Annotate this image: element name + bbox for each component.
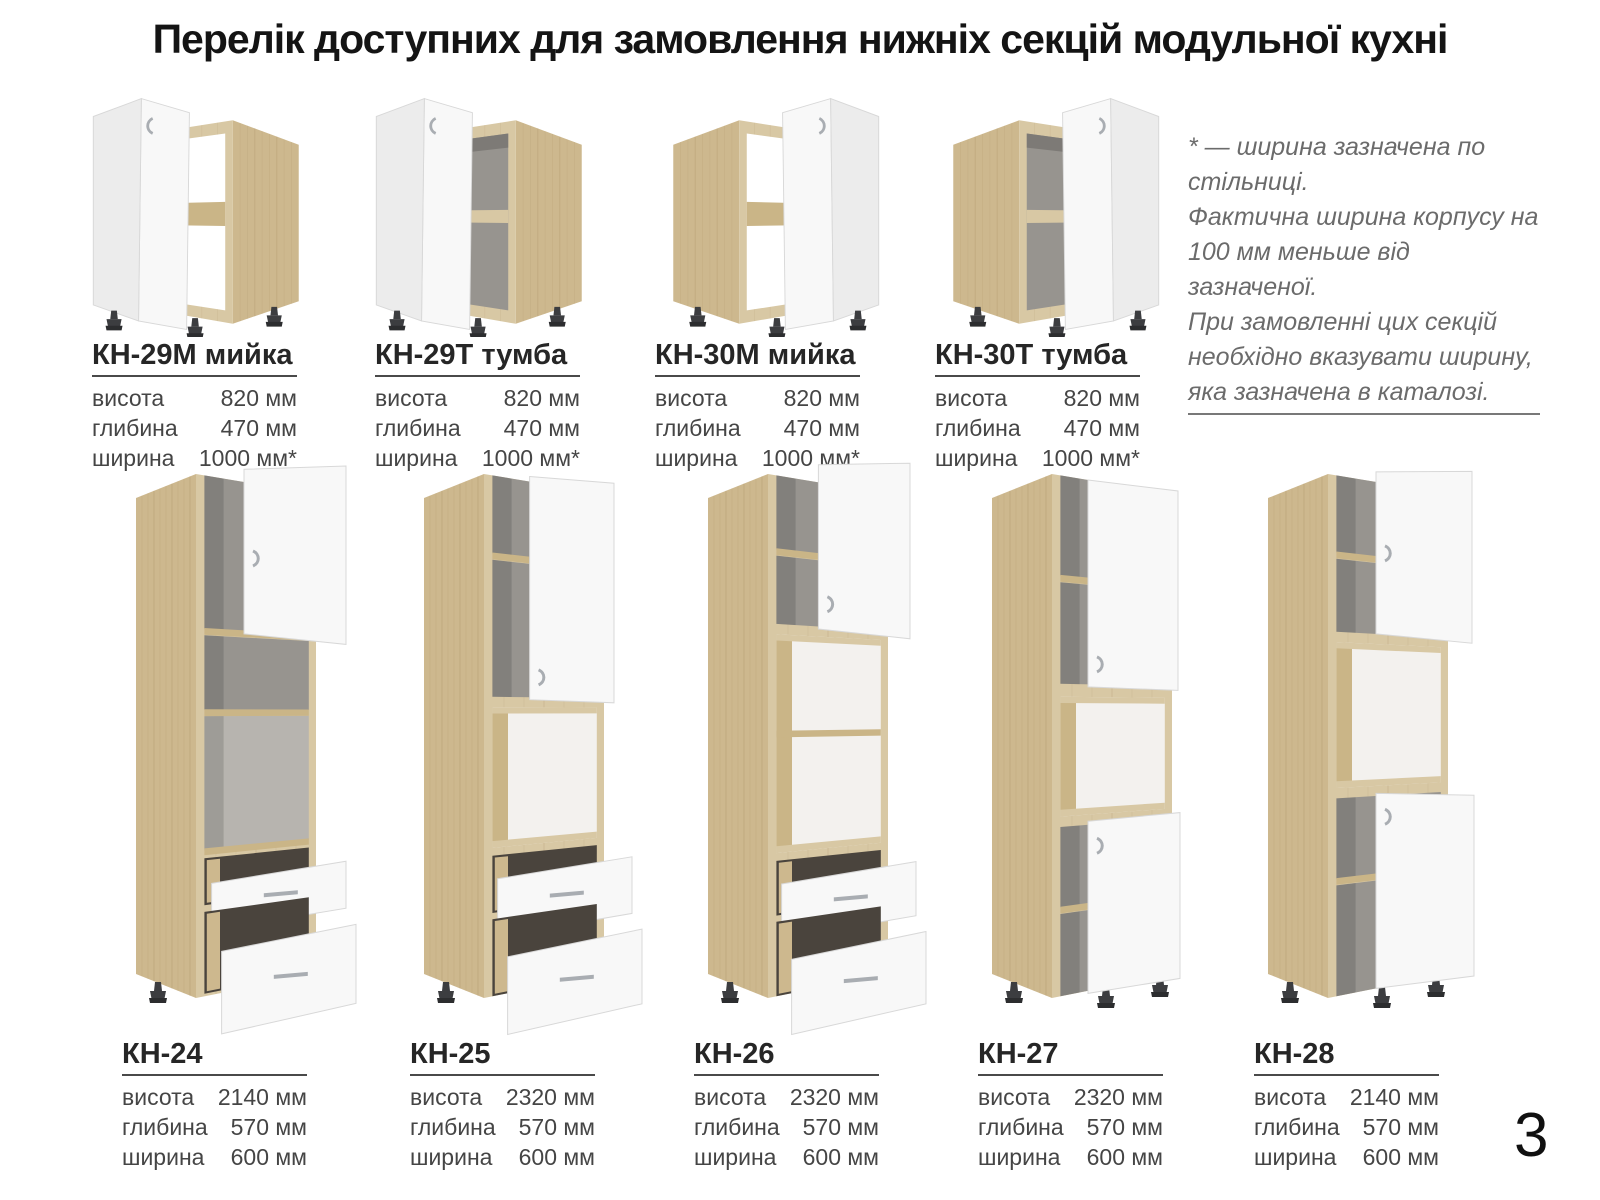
spec-width: ширина600 мм xyxy=(1254,1143,1439,1173)
cabinet-illustration-kn-30m-icon xyxy=(645,92,890,337)
cabinet-model-name: КН-30М мийка xyxy=(655,339,860,372)
cabinet-card-kn-29t: КН-29Т тумба висота820 мм глибина470 мм … xyxy=(365,92,621,474)
cabinet-model-name: КН-30Т тумба xyxy=(935,339,1140,372)
cabinet-card-kn-27: КН-27 висота2320 мм глибина570 мм ширина… xyxy=(956,456,1244,1173)
cabinet-illustration-kn-29t-icon xyxy=(365,92,610,337)
cabinet-illustration-kn-28-icon xyxy=(1232,456,1502,1036)
footnote-line: При замовленні цих секцій необхідно вказ… xyxy=(1188,305,1540,415)
footnote-line: Фактична ширина корпусу на 100 мм меньше… xyxy=(1188,200,1540,305)
footnote: * — ширина зазначена по стільниці. Факти… xyxy=(1188,130,1540,415)
spec-height: висота820 мм xyxy=(92,384,297,414)
spec-height: висота2320 мм xyxy=(978,1083,1163,1113)
cabinet-model-name: КН-29М мийка xyxy=(92,339,297,372)
spec-width: ширина600 мм xyxy=(122,1143,307,1173)
divider xyxy=(935,375,1140,377)
divider xyxy=(655,375,860,377)
spec-depth: глибина470 мм xyxy=(92,414,297,444)
cabinet-illustration-kn-26-icon xyxy=(672,456,942,1036)
cabinet-card-kn-30t: КН-30Т тумба висота820 мм глибина470 мм … xyxy=(925,92,1181,474)
divider xyxy=(1254,1074,1439,1076)
cabinet-model-name: КН-26 xyxy=(694,1038,879,1071)
spec-width: ширина600 мм xyxy=(978,1143,1163,1173)
divider xyxy=(122,1074,307,1076)
cabinet-model-name: КН-27 xyxy=(978,1038,1163,1071)
divider xyxy=(694,1074,879,1076)
spec-height: висота820 мм xyxy=(655,384,860,414)
cabinet-illustration-kn-30t-icon xyxy=(925,92,1170,337)
footnote-line: * — ширина зазначена по стільниці. xyxy=(1188,130,1540,200)
cabinet-model-name: КН-25 xyxy=(410,1038,595,1071)
cabinet-illustration-kn-29m-icon xyxy=(82,92,327,337)
divider xyxy=(410,1074,595,1076)
spec-height: висота2320 мм xyxy=(410,1083,595,1113)
divider xyxy=(375,375,580,377)
spec-depth: глибина570 мм xyxy=(1254,1113,1439,1143)
cabinet-model-name: КН-29Т тумба xyxy=(375,339,580,372)
spec-depth: глибина570 мм xyxy=(978,1113,1163,1143)
spec-height: висота2320 мм xyxy=(694,1083,879,1113)
cabinet-card-kn-24: КН-24 висота2140 мм глибина570 мм ширина… xyxy=(100,456,388,1173)
page-number: 3 xyxy=(1514,1100,1548,1171)
cabinet-card-kn-28: КН-28 висота2140 мм глибина570 мм ширина… xyxy=(1232,456,1520,1173)
cabinet-illustration-kn-24-icon xyxy=(100,456,370,1036)
cabinet-model-name: КН-24 xyxy=(122,1038,307,1071)
spec-height: висота2140 мм xyxy=(122,1083,307,1113)
spec-depth: глибина570 мм xyxy=(122,1113,307,1143)
divider xyxy=(978,1074,1163,1076)
divider xyxy=(92,375,297,377)
spec-height: висота820 мм xyxy=(935,384,1140,414)
spec-height: висота2140 мм xyxy=(1254,1083,1439,1113)
page-title: Перелік доступних для замовлення нижніх … xyxy=(0,16,1600,63)
cabinet-card-kn-26: КН-26 висота2320 мм глибина570 мм ширина… xyxy=(672,456,960,1173)
cabinet-card-kn-25: КН-25 висота2320 мм глибина570 мм ширина… xyxy=(388,456,676,1173)
spec-width: ширина600 мм xyxy=(694,1143,879,1173)
spec-width: ширина600 мм xyxy=(410,1143,595,1173)
cabinet-card-kn-30m: КН-30М мийка висота820 мм глибина470 мм … xyxy=(645,92,901,474)
cabinet-card-kn-29m: КН-29М мийка висота820 мм глибина470 мм … xyxy=(82,92,338,474)
cabinet-illustration-kn-27-icon xyxy=(956,456,1226,1036)
spec-depth: глибина570 мм xyxy=(694,1113,879,1143)
cabinet-illustration-kn-25-icon xyxy=(388,456,658,1036)
cabinet-model-name: КН-28 xyxy=(1254,1038,1439,1071)
spec-depth: глибина470 мм xyxy=(935,414,1140,444)
spec-depth: глибина470 мм xyxy=(375,414,580,444)
spec-depth: глибина470 мм xyxy=(655,414,860,444)
spec-height: висота820 мм xyxy=(375,384,580,414)
spec-depth: глибина570 мм xyxy=(410,1113,595,1143)
